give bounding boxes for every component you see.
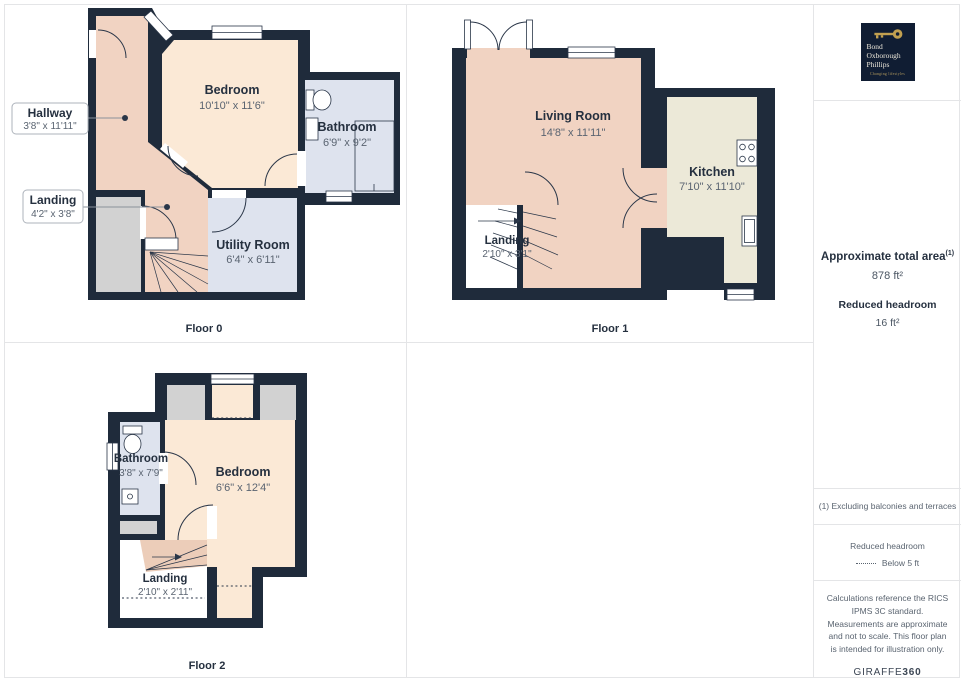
total-area-label-text: Approximate total area bbox=[821, 251, 946, 263]
dotted-line-sample bbox=[856, 563, 876, 564]
dims-utility: 6'4" x 6'11" bbox=[226, 254, 279, 266]
label-kitchen: Kitchen bbox=[689, 165, 735, 179]
logo-line-2: Oxborough bbox=[867, 51, 901, 60]
key-icon bbox=[868, 28, 908, 40]
total-area-value: 878 ft² bbox=[814, 270, 961, 282]
floor1-plan: Living Room 14'8" x 11'11" Kitchen 7'10"… bbox=[407, 4, 813, 342]
footnote-section: (1) Excluding balconies and terraces bbox=[814, 488, 961, 524]
headroom-block-right bbox=[260, 385, 296, 420]
headroom-block-left bbox=[167, 385, 205, 420]
footnote-text: (1) Excluding balconies and terraces bbox=[819, 501, 957, 511]
floor0-plan: Hallway 3'8" x 11'11" Landing 4'2" x 3'8… bbox=[4, 4, 408, 342]
landing-dot bbox=[164, 204, 170, 210]
label-utility: Utility Room bbox=[216, 238, 290, 252]
agency-logo: Bond Oxborough Phillips Changing lifesty… bbox=[861, 23, 915, 81]
dims-bathroom-f0: 6'9" x 9'2" bbox=[323, 137, 371, 149]
dims-landing-f2: 2'10" x 2'11" bbox=[138, 587, 193, 598]
headroom-strip-bath bbox=[120, 521, 157, 534]
disclaimer-section: Calculations reference the RICS IPMS 3C … bbox=[814, 580, 961, 678]
label-bedroom-f2: Bedroom bbox=[216, 465, 271, 479]
logo-tagline: Changing lifestyles bbox=[870, 72, 905, 76]
total-area-footnote-marker: (1) bbox=[946, 250, 955, 257]
giraffe-text: GIRAFFE bbox=[853, 667, 902, 678]
logo-line-1: Bond bbox=[867, 42, 883, 51]
reduced-headroom-value: 16 ft² bbox=[814, 317, 961, 329]
floor2-plan: Bathroom 3'8" x 7'9" Bedroom 6'6" x 12'4… bbox=[4, 342, 408, 679]
info-sidebar: Bond Oxborough Phillips Changing lifesty… bbox=[814, 4, 961, 678]
floor1-french-doors bbox=[465, 20, 533, 58]
callout-landing-label: Landing bbox=[30, 193, 77, 207]
callout-hallway-dims: 3'8" x 11'11" bbox=[23, 121, 77, 132]
floorplan-page: Hallway 3'8" x 11'11" Landing 4'2" x 3'8… bbox=[0, 0, 965, 683]
floor0-name: Floor 0 bbox=[186, 323, 223, 335]
label-bedroom-f0: Bedroom bbox=[205, 83, 260, 97]
dims-living: 14'8" x 11'11" bbox=[541, 127, 606, 139]
giraffe360-watermark: GIRAFFE360 bbox=[814, 667, 961, 678]
room-landing-f0 bbox=[96, 197, 141, 292]
label-landing-f1: Landing bbox=[485, 235, 530, 247]
label-bathroom-f0: Bathroom bbox=[317, 120, 376, 134]
hallway-dot bbox=[122, 115, 128, 121]
dims-kitchen: 7'10" x 11'10" bbox=[679, 181, 745, 193]
legend-title: Reduced headroom bbox=[814, 541, 961, 551]
floor2-name: Floor 2 bbox=[189, 660, 226, 672]
legend-desc: Below 5 ft bbox=[882, 558, 919, 568]
logo-line-3: Phillips bbox=[867, 60, 890, 69]
dims-bedroom-f2: 6'6" x 12'4" bbox=[216, 482, 270, 494]
dormer-strip bbox=[212, 385, 253, 418]
total-area-label: Approximate total area(1) bbox=[814, 250, 961, 263]
callout-hallway-label: Hallway bbox=[28, 106, 73, 120]
legend-line: Below 5 ft bbox=[814, 558, 961, 568]
dims-bedroom-f0: 10'10" x 11'6" bbox=[199, 100, 265, 112]
disclaimer-text: Calculations reference the RICS IPMS 3C … bbox=[825, 592, 951, 656]
floor1-name: Floor 1 bbox=[592, 323, 629, 335]
living-kitchen-opening bbox=[641, 168, 667, 228]
headroom-legend-section: Reduced headroom Below 5 ft bbox=[814, 524, 961, 580]
label-bathroom-f2: Bathroom bbox=[114, 453, 168, 465]
label-landing-f2: Landing bbox=[143, 573, 188, 585]
logo-section: Bond Oxborough Phillips Changing lifesty… bbox=[814, 4, 961, 100]
label-living: Living Room bbox=[535, 109, 611, 123]
dims-bathroom-f2: 3'8" x 7'9" bbox=[119, 468, 163, 479]
reduced-headroom-label: Reduced headroom bbox=[814, 299, 961, 311]
area-summary-section: Approximate total area(1) 878 ft² Reduce… bbox=[814, 100, 961, 488]
giraffe-360-text: 360 bbox=[902, 667, 921, 678]
dims-landing-f1: 2'10" x 3'1" bbox=[482, 249, 532, 260]
callout-landing-dims: 4'2" x 3'8" bbox=[31, 209, 75, 220]
